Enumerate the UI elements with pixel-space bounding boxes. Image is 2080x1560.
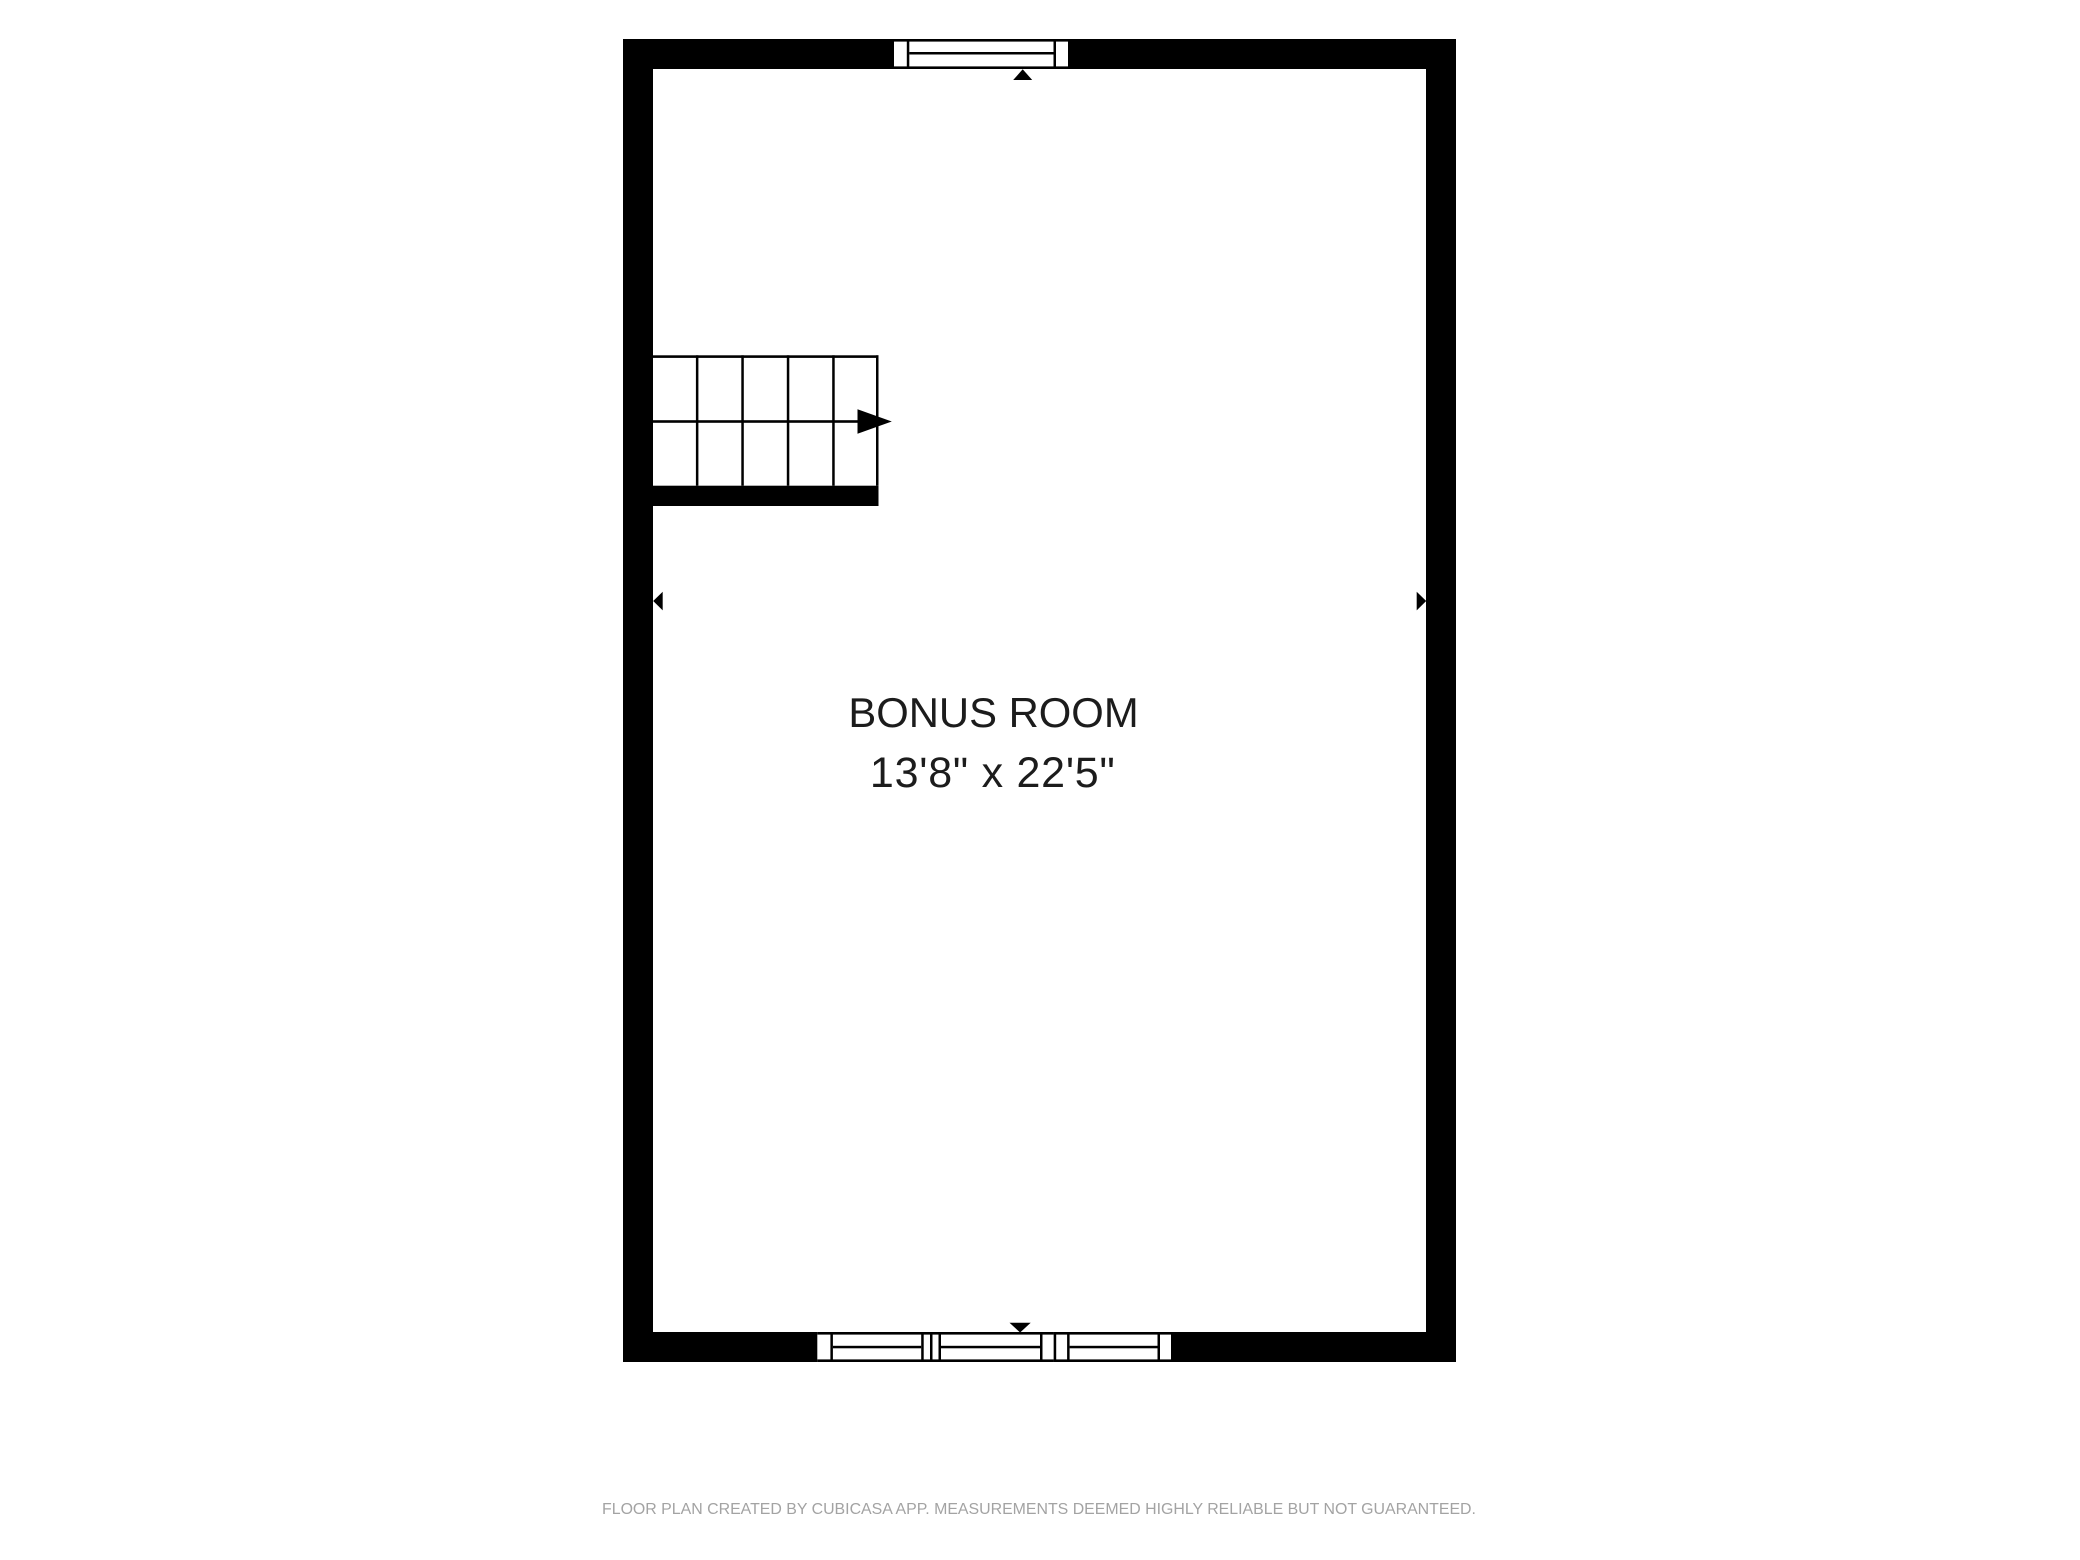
svg-text:BONUS ROOM: BONUS ROOM [848,689,1138,736]
svg-text:13'8" x 22'5": 13'8" x 22'5" [870,749,1116,797]
svg-text:FLOOR PLAN CREATED BY CUBICASA: FLOOR PLAN CREATED BY CUBICASA APP. MEAS… [602,1501,1476,1518]
